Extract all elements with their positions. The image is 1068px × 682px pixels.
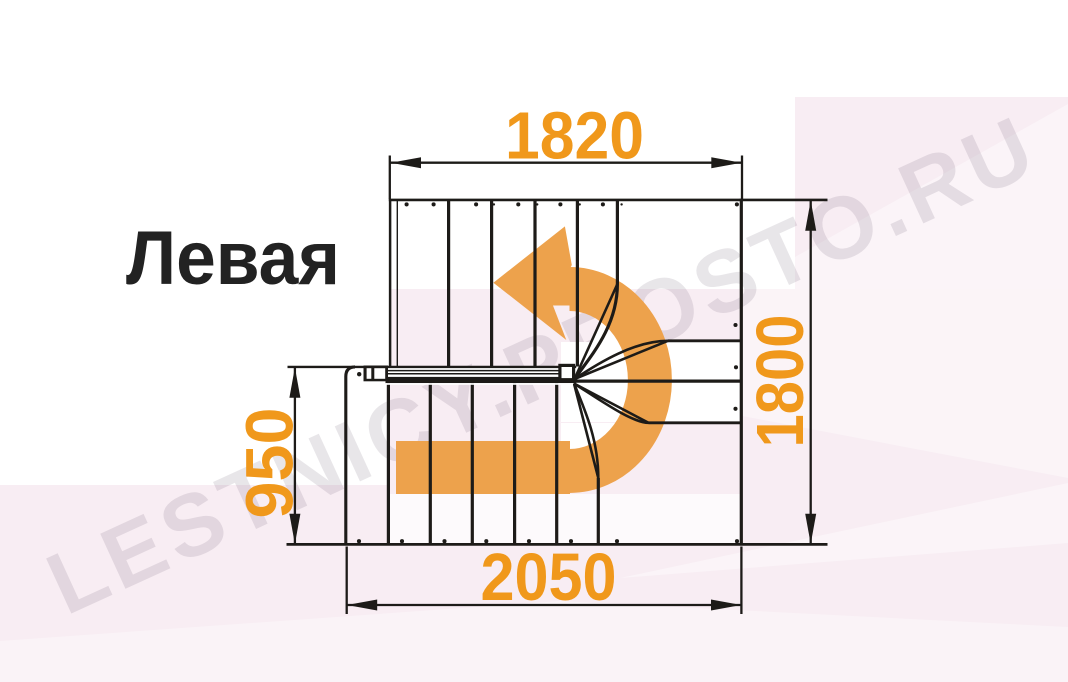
svg-text:950: 950 xyxy=(234,408,308,519)
svg-text:Левая: Левая xyxy=(126,216,340,301)
svg-text:1800: 1800 xyxy=(744,315,818,448)
svg-text:2050: 2050 xyxy=(481,541,617,615)
svg-text:1820: 1820 xyxy=(505,99,644,173)
